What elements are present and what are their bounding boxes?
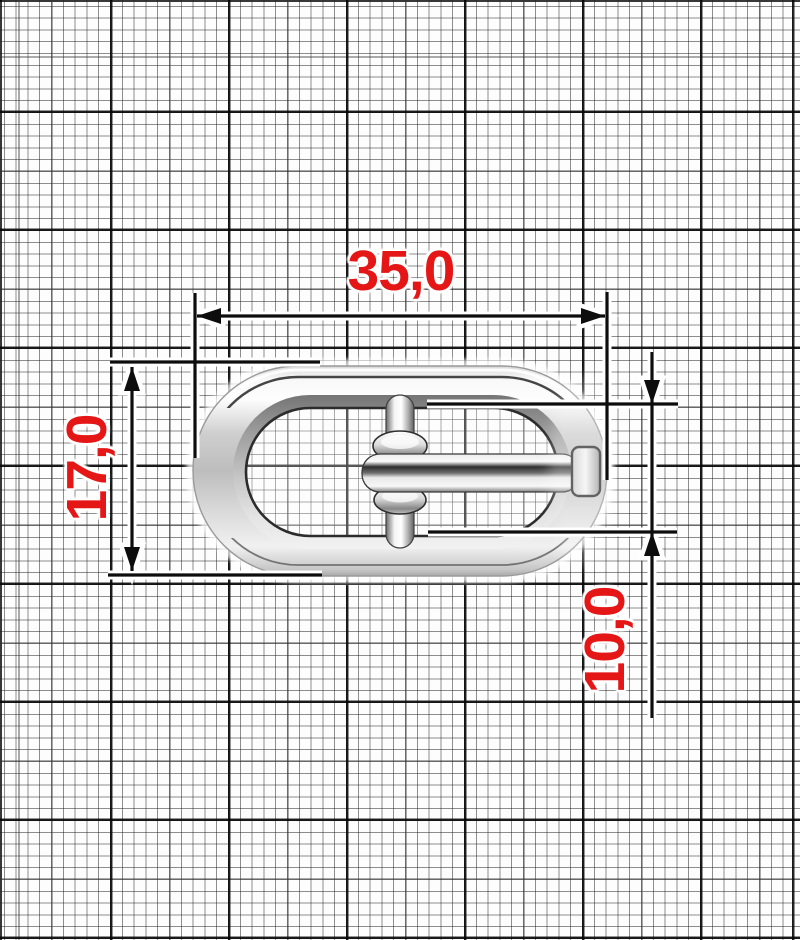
dimension-width-label: 35,0 <box>311 241 491 301</box>
metal-buckle <box>193 366 615 576</box>
buckle-dimension-drawing <box>0 0 800 940</box>
technical-drawing-page: 35,0 17,0 10,0 <box>0 0 800 940</box>
dimension-height-label: 17,0 <box>57 378 117 558</box>
buckle-pin <box>362 454 580 492</box>
dimension-pin-label: 10,0 <box>575 550 635 730</box>
pin-hinge-collar-top-highlight <box>381 435 419 449</box>
